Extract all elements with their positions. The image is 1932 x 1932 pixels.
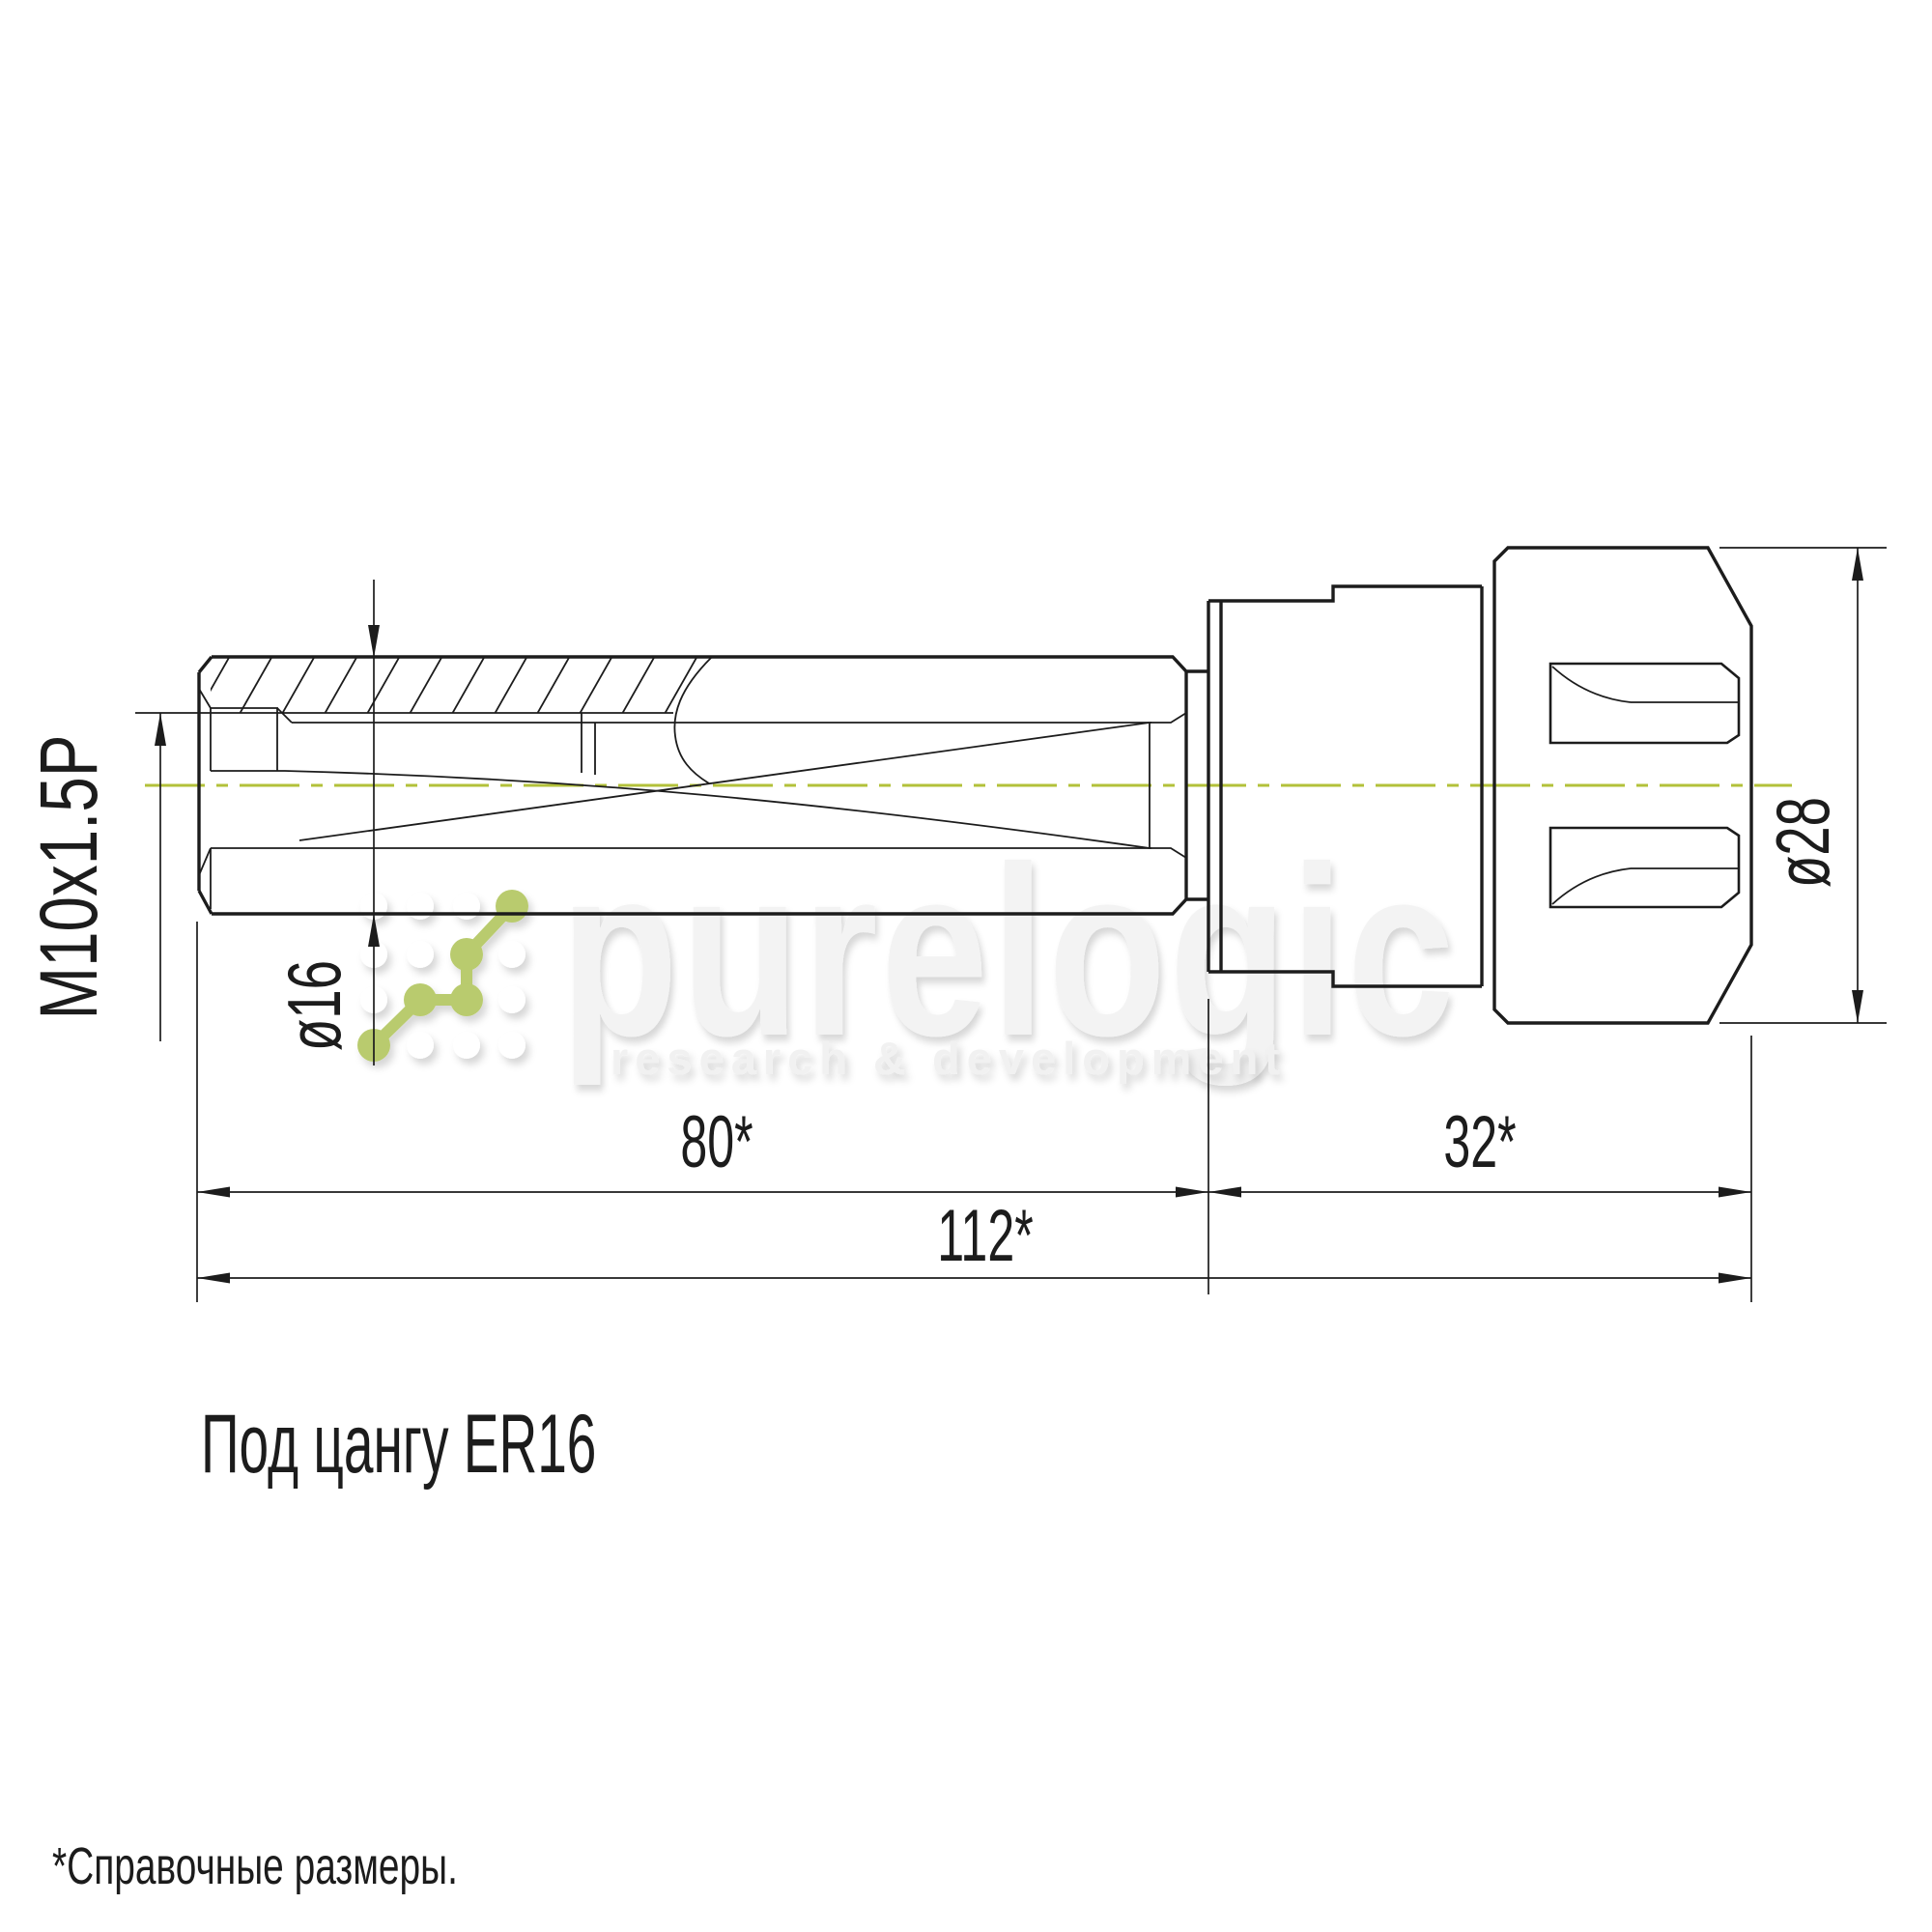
label-nut-length: 32* <box>1443 1101 1516 1183</box>
dim-nut-diameter <box>1719 548 1887 1023</box>
technical-drawing-page: purelogic research & development <box>0 0 1932 1932</box>
er16-collet-extension-drawing: purelogic research & development <box>0 0 1932 1932</box>
footnote-reference-dims: *Справочные размеры. <box>52 1836 458 1895</box>
label-total-length: 112* <box>937 1195 1033 1277</box>
watermark: purelogic research & development <box>357 816 1458 1086</box>
dim-thread <box>155 713 166 1041</box>
label-nut-diameter: ø28 <box>1761 797 1845 888</box>
note-collet-type: Под цангу ER16 <box>201 1399 596 1491</box>
watermark-tagline: research & development <box>611 1033 1287 1084</box>
label-shank-length: 80* <box>680 1101 753 1183</box>
label-thread: M10x1.5P <box>23 735 114 1020</box>
label-shank-diameter: ø16 <box>272 960 356 1051</box>
section-hatch <box>151 649 744 721</box>
